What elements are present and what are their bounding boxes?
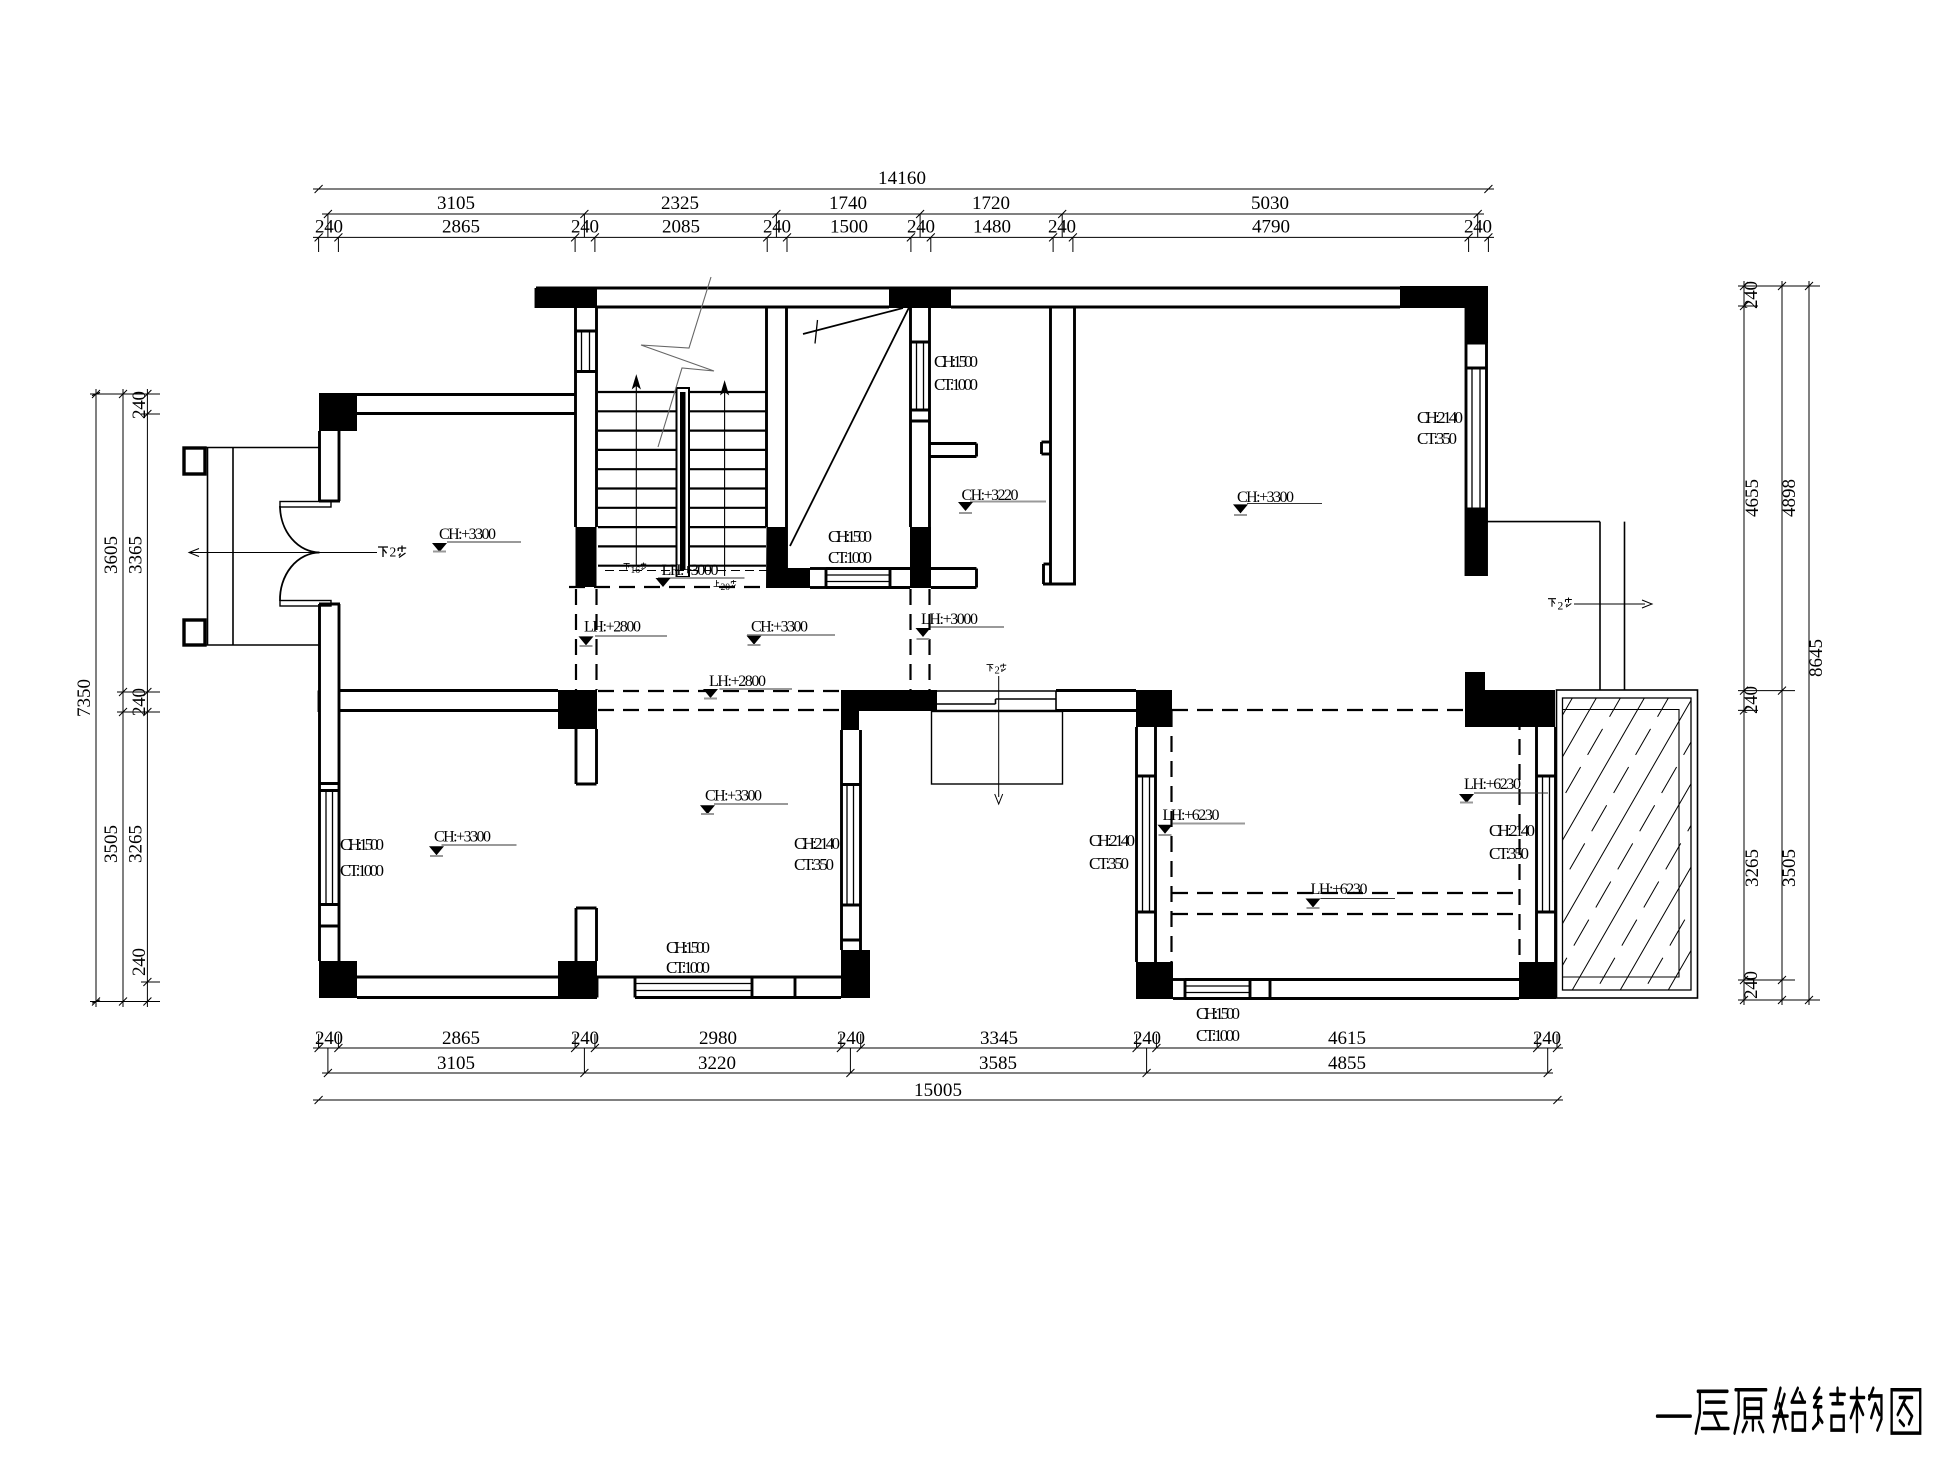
svg-text:240: 240 (1533, 1028, 1561, 1049)
svg-text:3365: 3365 (126, 536, 147, 574)
svg-text:CT:1000: CT:1000 (340, 861, 384, 880)
svg-text:CH:+3300: CH:+3300 (439, 526, 496, 543)
svg-text:CT:1000: CT:1000 (666, 958, 710, 977)
svg-text:CT:350: CT:350 (794, 855, 834, 874)
svg-text:14160: 14160 (878, 168, 926, 189)
svg-text:2: 2 (1558, 601, 1564, 613)
svg-text:240: 240 (571, 217, 599, 238)
svg-text:240: 240 (129, 391, 150, 419)
svg-text:2980: 2980 (699, 1028, 737, 1049)
svg-text:240: 240 (315, 1028, 343, 1049)
svg-text:LH:+3000: LH:+3000 (662, 562, 719, 579)
svg-text:1740: 1740 (829, 193, 867, 214)
svg-text:240: 240 (763, 217, 791, 238)
svg-text:LH:+6230: LH:+6230 (1163, 807, 1220, 824)
svg-text:3220: 3220 (698, 1053, 736, 1074)
svg-text:CH:1500: CH:1500 (828, 527, 872, 546)
svg-text:7350: 7350 (74, 679, 95, 717)
svg-text:CT:350: CT:350 (1089, 854, 1129, 873)
svg-text:CH:2140: CH:2140 (1417, 408, 1463, 427)
svg-text:2865: 2865 (442, 1028, 480, 1049)
svg-text:3505: 3505 (1779, 849, 1800, 887)
svg-text:240: 240 (1464, 217, 1492, 238)
svg-text:3605: 3605 (101, 536, 122, 574)
svg-text:240: 240 (1741, 686, 1762, 714)
svg-text:240: 240 (837, 1028, 865, 1049)
svg-text:1500: 1500 (830, 217, 868, 238)
svg-text:3265: 3265 (126, 825, 147, 863)
svg-text:3585: 3585 (979, 1053, 1017, 1074)
svg-text:CT:1000: CT:1000 (934, 375, 978, 394)
svg-text:CH:2140: CH:2140 (794, 834, 840, 853)
svg-text:CH:1500: CH:1500 (666, 938, 710, 957)
svg-text:CT:1000: CT:1000 (1196, 1026, 1240, 1045)
svg-text:2865: 2865 (442, 217, 480, 238)
svg-text:3105: 3105 (437, 193, 475, 214)
svg-text:240: 240 (315, 217, 343, 238)
svg-text:4615: 4615 (1328, 1028, 1366, 1049)
svg-text:240: 240 (1133, 1028, 1161, 1049)
svg-text:1720: 1720 (972, 193, 1010, 214)
svg-text:CT:350: CT:350 (1489, 844, 1529, 863)
svg-text:240: 240 (907, 217, 935, 238)
svg-text:15005: 15005 (914, 1080, 962, 1101)
svg-text:3105: 3105 (437, 1053, 475, 1074)
svg-text:CH:+3300: CH:+3300 (705, 788, 762, 805)
svg-text:240: 240 (1741, 281, 1762, 309)
svg-text:1480: 1480 (973, 217, 1011, 238)
svg-text:CH:1500: CH:1500 (340, 835, 384, 854)
svg-text:CH:1500: CH:1500 (934, 352, 978, 371)
svg-text:8645: 8645 (1806, 639, 1827, 677)
svg-text:2: 2 (995, 666, 1000, 677)
svg-text:LH:+6230: LH:+6230 (1311, 881, 1368, 898)
svg-text:2085: 2085 (662, 217, 700, 238)
svg-text:4790: 4790 (1252, 217, 1290, 238)
svg-text:CH:2140: CH:2140 (1489, 821, 1535, 840)
svg-text:16: 16 (631, 566, 641, 576)
svg-text:3505: 3505 (101, 825, 122, 863)
svg-text:CH:+3300: CH:+3300 (434, 829, 491, 846)
svg-text:CT:350: CT:350 (1417, 429, 1457, 448)
svg-text:CH:2140: CH:2140 (1089, 831, 1135, 850)
svg-text:LH:+3000: LH:+3000 (921, 611, 978, 628)
svg-text:4855: 4855 (1328, 1053, 1366, 1074)
svg-text:20: 20 (721, 583, 731, 593)
svg-text:LH:+2800: LH:+2800 (709, 673, 766, 690)
svg-text:240: 240 (129, 688, 150, 716)
svg-text:5030: 5030 (1251, 193, 1289, 214)
svg-text:LH:+2800: LH:+2800 (584, 619, 641, 636)
svg-text:240: 240 (571, 1028, 599, 1049)
svg-text:2325: 2325 (661, 193, 699, 214)
svg-text:3265: 3265 (1742, 849, 1763, 887)
svg-text:3345: 3345 (980, 1028, 1018, 1049)
svg-text:LH:+6230: LH:+6230 (1464, 776, 1521, 793)
svg-text:CH:+3300: CH:+3300 (751, 619, 808, 636)
svg-text:CH:1500: CH:1500 (1196, 1004, 1240, 1023)
svg-text:2: 2 (390, 545, 397, 560)
svg-text:240: 240 (1048, 217, 1076, 238)
svg-text:240: 240 (1741, 971, 1762, 999)
svg-text:4655: 4655 (1742, 479, 1763, 517)
svg-text:4898: 4898 (1779, 479, 1800, 517)
svg-text:240: 240 (129, 948, 150, 976)
svg-text:CT:1000: CT:1000 (828, 548, 872, 567)
